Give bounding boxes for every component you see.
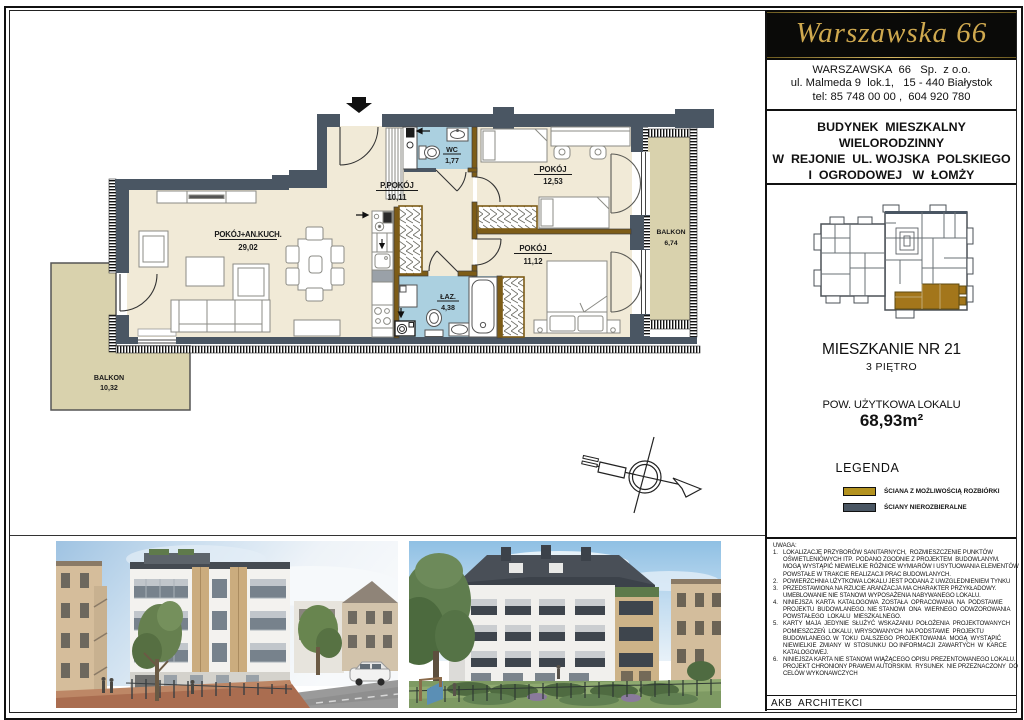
svg-text:BALKON: BALKON [94, 374, 124, 382]
svg-text:12,53: 12,53 [543, 177, 563, 186]
svg-text:10,11: 10,11 [387, 193, 407, 202]
svg-text:11,12: 11,12 [523, 257, 543, 266]
svg-text:BALKON: BALKON [656, 229, 685, 236]
svg-text:29,02: 29,02 [238, 243, 258, 252]
svg-text:10,32: 10,32 [100, 384, 118, 392]
svg-text:POKÓJ: POKÓJ [519, 244, 546, 253]
svg-text:ŁAZ.: ŁAZ. [440, 293, 456, 301]
svg-text:4,38: 4,38 [441, 304, 455, 312]
svg-text:1,77: 1,77 [445, 157, 459, 165]
svg-text:P.POKÓJ: P.POKÓJ [380, 181, 414, 190]
svg-text:POKÓJ: POKÓJ [539, 165, 566, 174]
svg-text:POKÓJ+AN.KUCH.: POKÓJ+AN.KUCH. [214, 230, 281, 239]
svg-text:6,74: 6,74 [664, 240, 677, 247]
svg-text:WC: WC [446, 146, 458, 154]
